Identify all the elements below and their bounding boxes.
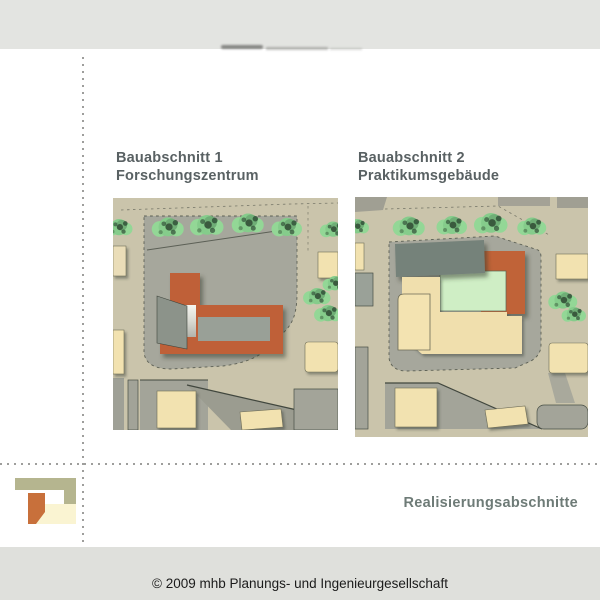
- site-plan-1: [113, 198, 338, 430]
- parcel-corner: [498, 197, 550, 206]
- building-cream: [355, 243, 364, 270]
- section-label: Realisierungsabschnitte: [403, 495, 578, 511]
- praktikumsgebaeude-cluster: [395, 240, 525, 354]
- panel-1-title: Bauabschnitt 1: [116, 150, 259, 168]
- building-cream: [549, 343, 588, 373]
- parcel-corner: [355, 197, 387, 212]
- building-cream: [395, 388, 437, 427]
- building-cream: [556, 254, 588, 279]
- building-cream: [113, 246, 126, 276]
- scan-artifact: [221, 45, 263, 49]
- company-logo: [14, 477, 78, 525]
- parcel-bottom-right: [537, 405, 588, 429]
- building-courtyard: [198, 317, 270, 341]
- panel-2-caption: Bauabschnitt 2 Praktikumsgebäude: [358, 150, 499, 185]
- dotted-horizontal-rule: [0, 463, 600, 465]
- building-cream: [305, 342, 338, 372]
- panel-2-title: Bauabschnitt 2: [358, 150, 499, 168]
- building-cream: [318, 252, 338, 278]
- panel-1-subtitle: Forschungszentrum: [116, 168, 259, 186]
- building-cream-rounded: [398, 294, 430, 350]
- street-strip: [128, 380, 138, 430]
- building-mint: [440, 271, 506, 311]
- parcel-gray-block: [355, 273, 373, 306]
- building-cream: [485, 406, 528, 428]
- mhb-logo: [14, 477, 78, 525]
- street-strip: [113, 378, 124, 430]
- building-cream: [113, 330, 124, 374]
- scan-artifact: [266, 47, 328, 50]
- logo-olive-shape: [15, 478, 76, 505]
- scan-bottom-band: [0, 547, 600, 600]
- building-roof-slab: [395, 240, 485, 277]
- street-strip: [355, 347, 368, 429]
- panel-2-subtitle: Praktikumsgebäude: [358, 168, 499, 186]
- parcel-corner: [557, 197, 588, 208]
- site-plan-2-image: [355, 197, 588, 437]
- panel-1-caption: Bauabschnitt 1 Forschungszentrum: [116, 150, 259, 185]
- building-cream: [157, 391, 196, 428]
- parcel-bottom-right: [294, 389, 338, 430]
- dotted-vertical-rule: [82, 57, 84, 546]
- scan-top-band: [0, 0, 600, 49]
- site-plan-2: [355, 197, 588, 437]
- scan-artifact: [330, 48, 362, 50]
- building-cream: [240, 409, 283, 430]
- copyright-text: © 2009 mhb Planungs- und Ingenieurgesell…: [0, 576, 600, 591]
- site-plan-1-image: [113, 198, 338, 430]
